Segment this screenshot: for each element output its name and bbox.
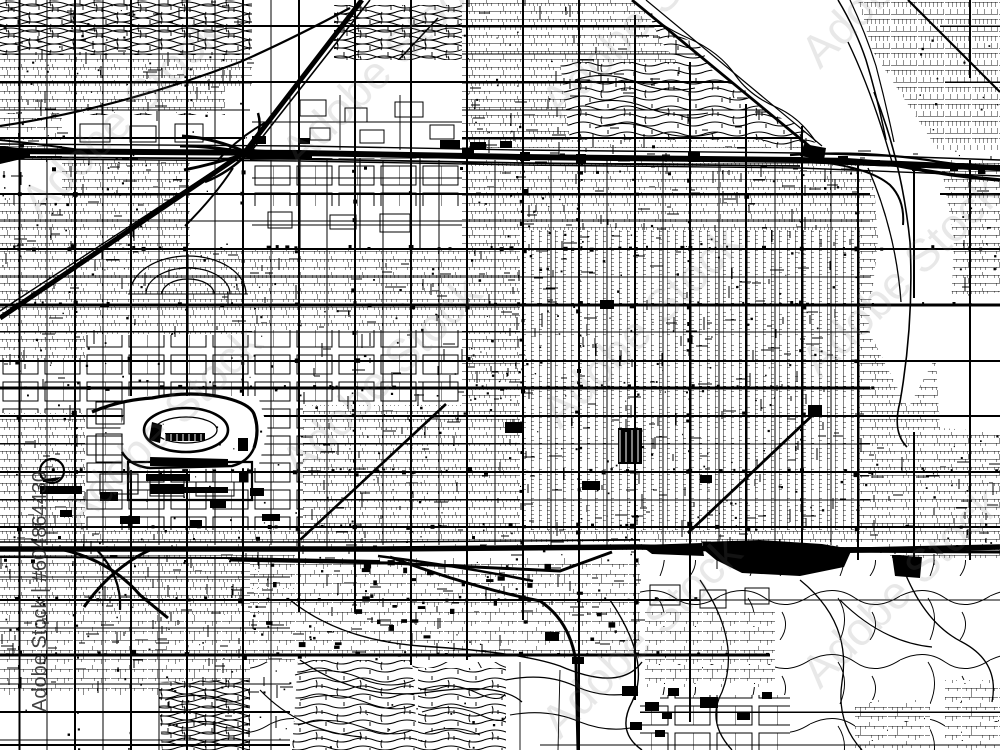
svg-text:Adobe Stock | #604864430: Adobe Stock | #604864430: [29, 471, 51, 712]
